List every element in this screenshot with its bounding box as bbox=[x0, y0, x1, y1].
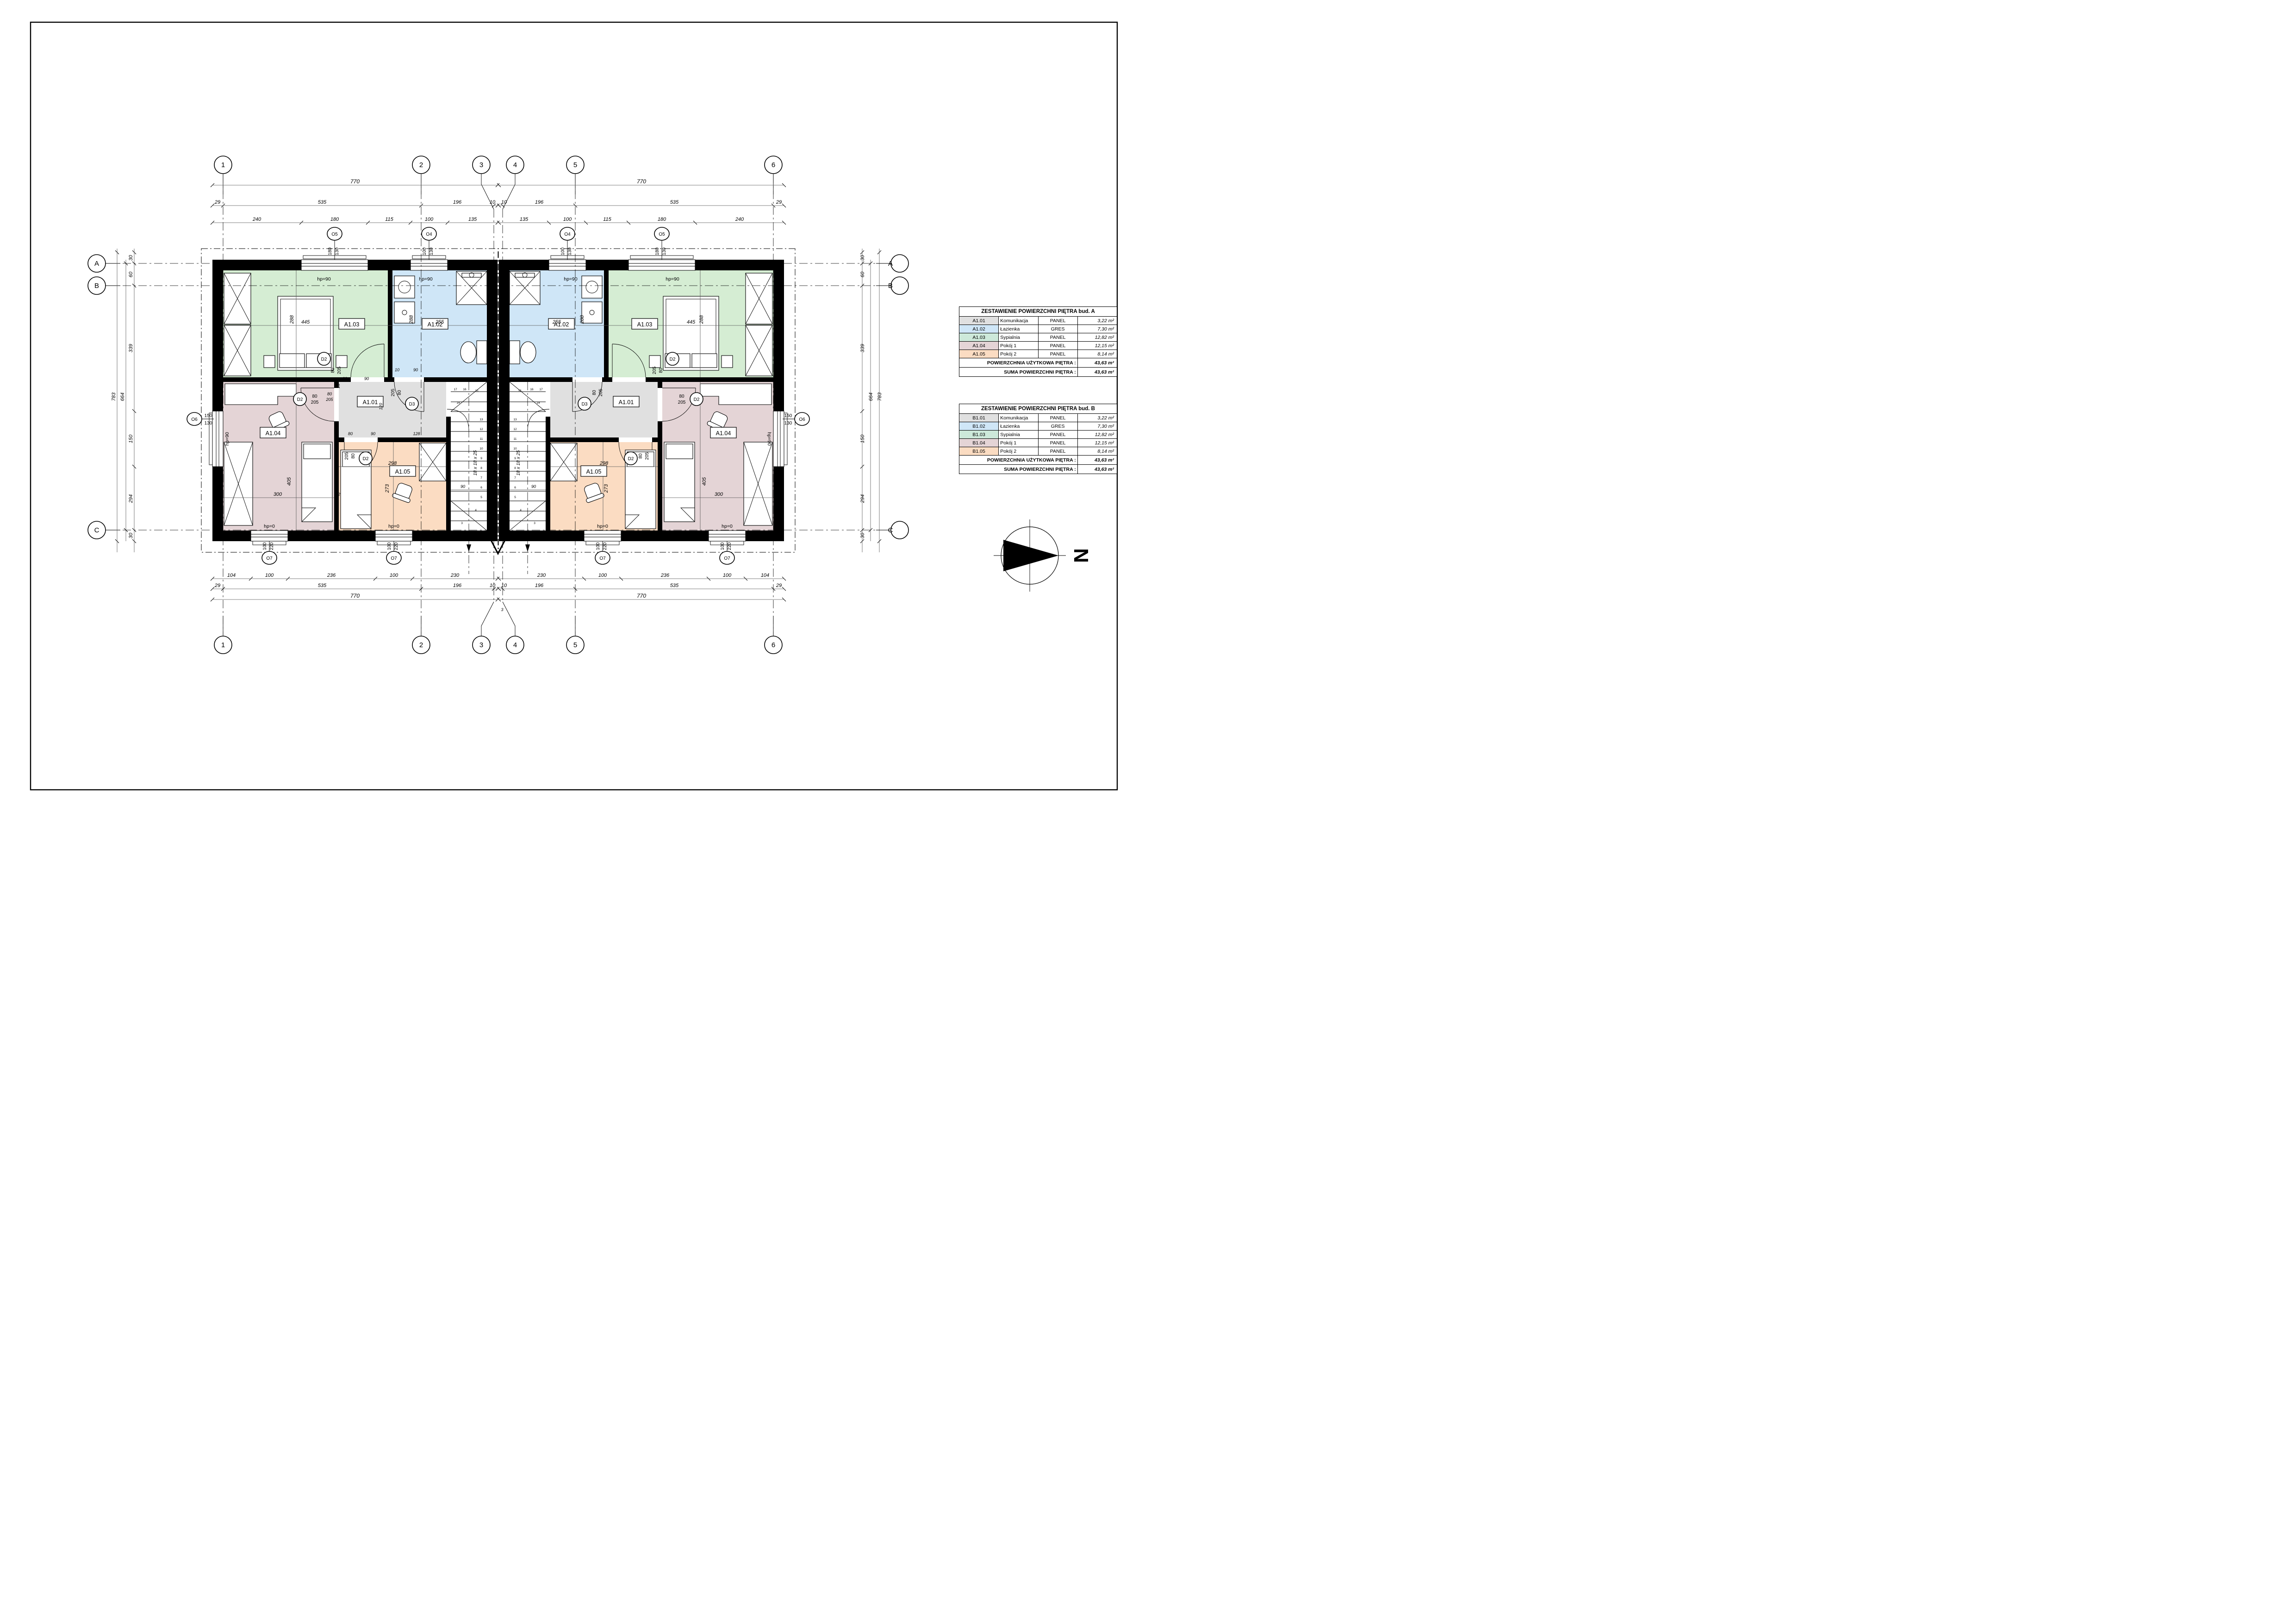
room-label-a103-left: A1.03 bbox=[344, 321, 360, 328]
o6-code-left: O6 bbox=[191, 417, 198, 422]
table-row: A1.04Pokój 1PANEL12,15 m² bbox=[959, 342, 1117, 350]
a103-w-right: 445 bbox=[687, 319, 696, 325]
list-text: 12 bbox=[513, 428, 517, 431]
table-cell-ar: 12,15 m² bbox=[1077, 439, 1117, 447]
room-label-a105-left: A1.05 bbox=[395, 468, 411, 475]
list-text: 535 bbox=[318, 200, 327, 205]
d3-w-left: 80 bbox=[397, 390, 402, 395]
list-text: 236 bbox=[327, 573, 336, 578]
list-text: 230 bbox=[450, 573, 460, 578]
table-b-sum-label: SUMA POWIERZCHNI PIĘTRA : bbox=[959, 465, 1078, 474]
d2-a103-right: D2 bbox=[670, 357, 676, 362]
list-text: 294 bbox=[860, 494, 865, 503]
o7-code-right2: O7 bbox=[599, 556, 606, 561]
o6-h-left: 130 bbox=[205, 421, 212, 426]
d3-left: D3 bbox=[409, 402, 415, 407]
table-b-body: B1.01KomunikacjaPANEL3,22 m²B1.02Łazienk… bbox=[959, 414, 1117, 456]
o4-w-right: 100 bbox=[560, 247, 566, 255]
o4-h-right: 130 bbox=[567, 247, 572, 255]
axis-labels-top: 123456 bbox=[221, 161, 775, 169]
sheet: 770770 29535196101019653529 240180115100… bbox=[0, 0, 1148, 812]
table-cell-fin: GRES bbox=[1038, 325, 1077, 333]
table-cell-ar: 12,82 m² bbox=[1077, 431, 1117, 439]
table-cell-code: B1.03 bbox=[959, 431, 999, 439]
table-cell-nm: Łazienka bbox=[999, 422, 1038, 431]
a105-h-right: 273 bbox=[604, 484, 609, 493]
d2-a105-right: D2 bbox=[628, 456, 634, 462]
list-text: 7 bbox=[480, 476, 482, 480]
dim-left-783: 783 bbox=[111, 392, 117, 401]
a102-w-right: 255 bbox=[552, 319, 561, 325]
list-text: 5 bbox=[480, 496, 482, 499]
list-text: 1 bbox=[221, 641, 225, 649]
room-label-a101-left: A1.01 bbox=[363, 399, 378, 406]
list-text: 196 bbox=[535, 583, 544, 588]
table-cell-code: B1.01 bbox=[959, 414, 999, 422]
list-text: 17 bbox=[539, 388, 543, 391]
list-text: 5 bbox=[573, 641, 577, 649]
hp0-a105-left: hp=0 bbox=[388, 524, 399, 529]
list-text: 196 bbox=[453, 200, 462, 205]
d2-a105-left: D2 bbox=[363, 456, 369, 462]
list-text: C bbox=[94, 526, 100, 534]
o7-h-right2: 220 bbox=[603, 542, 608, 550]
list-text: 3 bbox=[479, 161, 483, 169]
axis-labels-left: ABC bbox=[94, 260, 100, 534]
o6-h-right: 130 bbox=[784, 421, 792, 426]
c15-left: 15 bbox=[336, 383, 341, 388]
list-text: 115 bbox=[385, 217, 393, 222]
o7-h-right1: 220 bbox=[727, 542, 732, 550]
table-cell-code: B1.04 bbox=[959, 439, 999, 447]
table-cell-code: B1.02 bbox=[959, 422, 999, 431]
table-cell-fin: PANEL bbox=[1038, 342, 1077, 350]
list-text: 13 bbox=[513, 418, 517, 421]
c90d-left: 90 bbox=[413, 368, 418, 372]
table-b-total-value: 43,63 m² bbox=[1077, 456, 1117, 465]
stair-note-left: 18 x 18 x 25 bbox=[473, 450, 478, 475]
table-cell-nm: Pokój 1 bbox=[999, 439, 1038, 447]
area-table-building-b: ZESTAWIENIE POWIERZCHNI PIĘTRA bud. B B1… bbox=[959, 404, 1117, 474]
table-cell-nm: Sypialnia bbox=[999, 333, 1038, 342]
list-text: 10 bbox=[501, 200, 507, 205]
d3-h-right: 205 bbox=[598, 388, 604, 396]
axis-labels-right: ABC bbox=[888, 260, 893, 534]
list-text: 5 bbox=[514, 496, 516, 499]
hp0-a104-left: hp=0 bbox=[264, 524, 275, 529]
table-cell-nm: Łazienka bbox=[999, 325, 1038, 333]
table-cell-code: B1.05 bbox=[959, 447, 999, 456]
north-arrow: N bbox=[994, 519, 1092, 592]
dim-bottom-row1: 104100236100230230100236100104 bbox=[227, 573, 769, 578]
table-cell-code: A1.03 bbox=[959, 333, 999, 342]
table-cell-fin: PANEL bbox=[1038, 317, 1077, 325]
axis-labels-bottom: 123456 bbox=[221, 641, 775, 649]
a102-w-left: 255 bbox=[435, 319, 444, 325]
o4-w-left: 100 bbox=[422, 247, 427, 255]
table-cell-fin: PANEL bbox=[1038, 350, 1077, 358]
list-text: 3 bbox=[461, 522, 463, 525]
list-text: 3 bbox=[479, 641, 483, 649]
list-text: 230 bbox=[537, 573, 546, 578]
list-text: 180 bbox=[658, 217, 666, 222]
c33-left: 33 bbox=[342, 376, 347, 381]
list-text: 6 bbox=[772, 641, 775, 649]
area-table-building-a: ZESTAWIENIE POWIERZCHNI PIĘTRA bud. A A1… bbox=[959, 306, 1117, 377]
list-text: 115 bbox=[603, 217, 611, 222]
list-text: 535 bbox=[670, 200, 679, 205]
dim-right-783: 783 bbox=[877, 392, 883, 401]
list-text: 150 bbox=[128, 434, 134, 443]
o5-h-right: 130 bbox=[662, 247, 667, 255]
table-cell-fin: PANEL bbox=[1038, 333, 1077, 342]
o7-code-left2: O7 bbox=[391, 556, 397, 561]
table-cell-ar: 8,14 m² bbox=[1077, 350, 1117, 358]
o6-w-left: 150 bbox=[205, 413, 212, 418]
list-text: 100 bbox=[563, 217, 572, 222]
list-text: 30 bbox=[128, 255, 134, 261]
table-cell-fin: GRES bbox=[1038, 422, 1077, 431]
table-a-title: ZESTAWIENIE POWIERZCHNI PIĘTRA bud. A bbox=[959, 307, 1117, 317]
list-text: 2 bbox=[419, 641, 423, 649]
north-arrow-triangle bbox=[1003, 540, 1058, 571]
table-cell-ar: 8,14 m² bbox=[1077, 447, 1117, 456]
table-b-title: ZESTAWIENIE POWIERZCHNI PIĘTRA bud. B bbox=[959, 404, 1117, 414]
list-text: 135 bbox=[468, 217, 477, 222]
table-row: B1.01KomunikacjaPANEL3,22 m² bbox=[959, 414, 1117, 422]
c128-left: 128 bbox=[413, 431, 420, 436]
room-label-a105-right: A1.05 bbox=[586, 468, 602, 475]
drawing-sheet: { "tables": { "a": { "title": "ZESTAWIEN… bbox=[0, 0, 1148, 812]
list-text: 535 bbox=[318, 583, 327, 588]
o7-code-left1: O7 bbox=[266, 556, 273, 561]
wall12-top-left: 12 bbox=[388, 320, 392, 325]
list-text: 12 bbox=[479, 428, 483, 431]
list-text: 10 bbox=[479, 447, 483, 450]
o7-w-left1: 100 bbox=[262, 542, 268, 550]
dim-right-664: 664 bbox=[868, 393, 874, 401]
o7-code-right1: O7 bbox=[724, 556, 730, 561]
hp90-a104-right: hp=90 bbox=[766, 432, 772, 446]
list-text: 7 bbox=[514, 476, 516, 480]
list-text: 2 bbox=[419, 161, 423, 169]
dim-bottom-row2: 29535196101019653529 bbox=[214, 583, 782, 588]
d2-a104-right: D2 bbox=[694, 397, 700, 402]
room-label-a104-left: A1.04 bbox=[266, 430, 281, 437]
list-text: 770 bbox=[637, 593, 646, 599]
a105-w-left: 298 bbox=[388, 461, 397, 466]
list-text: 6 bbox=[514, 486, 516, 489]
dim-top-row1: 770770 bbox=[350, 178, 646, 185]
list-text: 11 bbox=[514, 437, 517, 441]
list-text: 104 bbox=[227, 573, 236, 578]
list-text: 339 bbox=[128, 344, 134, 352]
list-text: 17 bbox=[454, 388, 457, 391]
list-text: 104 bbox=[761, 573, 769, 578]
table-b-sum-value: 43,63 m² bbox=[1077, 465, 1117, 474]
table-a-sum-value: 43,63 m² bbox=[1077, 368, 1117, 377]
o4-h-left: 130 bbox=[429, 247, 434, 255]
c90b-left: 90 bbox=[371, 431, 375, 436]
list-text: 15 bbox=[518, 389, 522, 393]
list-text: 180 bbox=[330, 217, 339, 222]
o4-code-right: O4 bbox=[564, 232, 571, 237]
table-row: B1.05Pokój 2PANEL8,14 m² bbox=[959, 447, 1117, 456]
list-text: 16 bbox=[530, 388, 534, 391]
list-text: 150 bbox=[860, 434, 865, 443]
d3-h-left: 205 bbox=[391, 388, 396, 396]
table-row: A1.03SypialniaPANEL12,82 m² bbox=[959, 333, 1117, 342]
o6-w-right: 150 bbox=[784, 413, 792, 418]
o7-w-left2: 100 bbox=[387, 542, 392, 550]
list-text: A bbox=[94, 260, 99, 268]
table-cell-code: A1.02 bbox=[959, 325, 999, 333]
list-text: 1 bbox=[221, 161, 225, 169]
o7-w-right2: 100 bbox=[596, 542, 601, 550]
table-a-total-label: POWIERZCHNIA UŻYTKOWA PIĘTRA : bbox=[959, 358, 1078, 368]
list-text: B bbox=[888, 282, 893, 290]
building-a-geometry bbox=[88, 156, 499, 654]
list-text: 535 bbox=[670, 583, 679, 588]
table-row: B1.03SypialniaPANEL12,82 m² bbox=[959, 431, 1117, 439]
list-text: 100 bbox=[598, 573, 607, 578]
table-cell-code: A1.04 bbox=[959, 342, 999, 350]
list-text: 15 bbox=[475, 389, 479, 393]
building-b-geometry bbox=[497, 156, 908, 654]
c80-205b-left: 205 bbox=[325, 397, 333, 402]
table-cell-nm: Pokój 2 bbox=[999, 447, 1038, 456]
d2-a103-w-left: 80 bbox=[330, 368, 336, 373]
a104-h-left: 405 bbox=[286, 477, 292, 486]
table-cell-code: A1.05 bbox=[959, 350, 999, 358]
stair-note-right: 18 x 18 x 25 bbox=[516, 450, 521, 475]
table-cell-code: A1.01 bbox=[959, 317, 999, 325]
table-cell-ar: 7,30 m² bbox=[1077, 422, 1117, 431]
d2-a105-w-right: 80 bbox=[638, 453, 643, 459]
o7-h-left2: 220 bbox=[394, 542, 399, 550]
list-text: 4 bbox=[513, 161, 517, 169]
o5-code-left: O5 bbox=[331, 232, 338, 237]
list-text: 13 bbox=[479, 418, 483, 421]
table-cell-fin: PANEL bbox=[1038, 447, 1077, 456]
table-cell-nm: Pokój 1 bbox=[999, 342, 1038, 350]
list-text: 14 bbox=[536, 401, 540, 405]
d2-a104-h-right: 205 bbox=[678, 400, 686, 405]
d2-a104-w-right: 80 bbox=[679, 394, 684, 399]
dim-gap: 3 bbox=[501, 607, 503, 612]
wall12-a104-left: 12 bbox=[336, 492, 340, 497]
list-text: 16 bbox=[463, 388, 467, 391]
list-text: 100 bbox=[390, 573, 398, 578]
list-text: 196 bbox=[453, 583, 462, 588]
hp90-a103-left: hp=90 bbox=[317, 276, 331, 282]
list-text: 770 bbox=[350, 178, 360, 185]
o5-w-left: 180 bbox=[328, 247, 333, 255]
list-text: 6 bbox=[480, 486, 482, 489]
table-cell-nm: Komunikacja bbox=[999, 414, 1038, 422]
d3-w-right: 80 bbox=[592, 390, 597, 395]
c80-205a-left: 80 bbox=[327, 392, 332, 396]
list-text: 135 bbox=[520, 217, 529, 222]
list-text: 240 bbox=[252, 217, 261, 222]
a105-h-left: 273 bbox=[385, 484, 390, 493]
table-row: B1.02ŁazienkaGRES7,30 m² bbox=[959, 422, 1117, 431]
dim-left-664: 664 bbox=[120, 393, 125, 401]
list-text: 9 bbox=[480, 457, 482, 460]
d2-a103-h-left: 205 bbox=[337, 366, 342, 374]
list-text: 770 bbox=[637, 178, 646, 185]
hp0-a105-right: hp=0 bbox=[597, 524, 608, 529]
table-cell-nm: Komunikacja bbox=[999, 317, 1038, 325]
hp90-a103-right: hp=90 bbox=[666, 276, 679, 282]
list-text: 30 bbox=[860, 532, 865, 538]
table-b-total-label: POWIERZCHNIA UŻYTKOWA PIĘTRA : bbox=[959, 456, 1078, 465]
d3-right: D3 bbox=[582, 402, 588, 407]
north-label: N bbox=[1070, 548, 1092, 563]
wall10-left: 10 bbox=[395, 368, 399, 372]
list-text: 4 bbox=[513, 641, 517, 649]
dim-bottom-row3: 770770 bbox=[350, 593, 646, 599]
o6-code-right: O6 bbox=[799, 417, 805, 422]
a105-w-right: 298 bbox=[599, 461, 609, 466]
list-text: 30 bbox=[860, 255, 865, 261]
o5-h-left: 130 bbox=[335, 247, 340, 255]
dim-top-row2: 29535196101019653529 bbox=[214, 200, 782, 205]
list-text: 29 bbox=[776, 200, 782, 205]
table-cell-ar: 3,22 m² bbox=[1077, 414, 1117, 422]
list-text: 10 bbox=[490, 583, 496, 588]
d2-a103-left: D2 bbox=[321, 357, 327, 362]
d2-a105-h-left: 205 bbox=[344, 452, 349, 460]
table-row: A1.05Pokój 2PANEL8,14 m² bbox=[959, 350, 1117, 358]
list-text: 339 bbox=[860, 344, 865, 352]
a103-h-right: 288 bbox=[699, 315, 704, 324]
d2-a105-w-left: 80 bbox=[351, 453, 356, 459]
d2-a104-w-left: 80 bbox=[312, 394, 317, 399]
list-text: 29 bbox=[214, 583, 220, 588]
window-o6 bbox=[209, 411, 223, 467]
o7-w-right1: 100 bbox=[720, 542, 725, 550]
list-text: 100 bbox=[265, 573, 274, 578]
c90t-left: 90 bbox=[364, 376, 369, 381]
d2-a103-h-right: 205 bbox=[652, 366, 657, 374]
stair-w-left: 90 bbox=[460, 484, 465, 489]
hp90-a104-left: hp=90 bbox=[224, 432, 230, 446]
list-text: 10 bbox=[513, 447, 517, 450]
d2-a104-h-left: 205 bbox=[311, 400, 319, 405]
hp0-a104-right: hp=0 bbox=[722, 524, 733, 529]
room-label-a104-right: A1.04 bbox=[716, 430, 731, 437]
c120-left: 120 bbox=[379, 403, 383, 410]
list-text: 100 bbox=[425, 217, 434, 222]
list-text: 10 bbox=[501, 583, 507, 588]
table-row: B1.04Pokój 1PANEL12,15 m² bbox=[959, 439, 1117, 447]
list-text: A bbox=[888, 260, 893, 268]
hp90-a102-left: hp=90 bbox=[419, 276, 433, 282]
list-text: 294 bbox=[128, 494, 134, 503]
list-text: 240 bbox=[735, 217, 744, 222]
table-cell-ar: 7,30 m² bbox=[1077, 325, 1117, 333]
list-text: 60 bbox=[128, 271, 134, 277]
room-label-a103-right: A1.03 bbox=[637, 321, 653, 328]
a103-w-left: 445 bbox=[301, 319, 310, 325]
table-cell-ar: 12,15 m² bbox=[1077, 342, 1117, 350]
list-text: 8 bbox=[480, 467, 482, 470]
dim-right-chain: 306033915029430 bbox=[860, 255, 865, 538]
c80-left: 80 bbox=[348, 431, 353, 436]
a103-h-left: 288 bbox=[289, 315, 295, 324]
table-cell-nm: Pokój 2 bbox=[999, 350, 1038, 358]
a102-h-right: 288 bbox=[579, 315, 585, 324]
list-text: 4 bbox=[475, 509, 477, 512]
hp90-a102-right: hp=90 bbox=[564, 276, 578, 282]
table-cell-fin: PANEL bbox=[1038, 431, 1077, 439]
a104-w-left: 300 bbox=[274, 492, 282, 497]
o5-code-right: O5 bbox=[659, 232, 665, 237]
list-text: 60 bbox=[860, 271, 865, 277]
o4-code-left: O4 bbox=[426, 232, 432, 237]
table-cell-ar: 3,22 m² bbox=[1077, 317, 1117, 325]
list-text: 30 bbox=[128, 532, 134, 538]
dim-left-chain: 306033915029430 bbox=[128, 255, 134, 538]
room-label-a101-right: A1.01 bbox=[619, 399, 634, 406]
list-text: 14 bbox=[456, 401, 460, 405]
list-text: 5 bbox=[573, 161, 577, 169]
list-text: 29 bbox=[776, 583, 782, 588]
list-text: 6 bbox=[772, 161, 775, 169]
d2-a103-w-right: 80 bbox=[659, 368, 664, 373]
table-a-total-value: 43,63 m² bbox=[1077, 358, 1117, 368]
d2-a104-left: D2 bbox=[297, 397, 303, 402]
list-text: 10 bbox=[490, 200, 496, 205]
list-text: 11 bbox=[480, 437, 483, 441]
stair-w-right: 90 bbox=[531, 484, 536, 489]
table-cell-fin: PANEL bbox=[1038, 414, 1077, 422]
list-text: 3 bbox=[534, 522, 535, 525]
dim-top-row3: 240180115100135135100115180240 bbox=[252, 217, 744, 222]
table-a-body: A1.01KomunikacjaPANEL3,22 m²A1.02Łazienk… bbox=[959, 317, 1117, 358]
list-text: C bbox=[888, 526, 893, 534]
d2-a105-h-right: 205 bbox=[645, 452, 650, 460]
list-text: 4 bbox=[520, 509, 522, 512]
table-a-sum-label: SUMA POWIERZCHNI PIĘTRA : bbox=[959, 368, 1078, 377]
table-cell-nm: Sypialnia bbox=[999, 431, 1038, 439]
list-text: 196 bbox=[535, 200, 544, 205]
list-text: 770 bbox=[350, 593, 360, 599]
list-text: 100 bbox=[723, 573, 732, 578]
list-text: 29 bbox=[214, 200, 220, 205]
o5-w-right: 180 bbox=[655, 247, 660, 255]
table-row: A1.01KomunikacjaPANEL3,22 m² bbox=[959, 317, 1117, 325]
table-row: A1.02ŁazienkaGRES7,30 m² bbox=[959, 325, 1117, 333]
table-cell-fin: PANEL bbox=[1038, 439, 1077, 447]
a104-h-right: 405 bbox=[702, 477, 707, 486]
a104-w-right: 300 bbox=[715, 492, 723, 497]
table-cell-ar: 12,82 m² bbox=[1077, 333, 1117, 342]
list-text: B bbox=[94, 282, 99, 290]
list-text: 236 bbox=[660, 573, 670, 578]
o7-h-left1: 220 bbox=[269, 542, 274, 550]
a102-h-left: 288 bbox=[409, 315, 414, 324]
